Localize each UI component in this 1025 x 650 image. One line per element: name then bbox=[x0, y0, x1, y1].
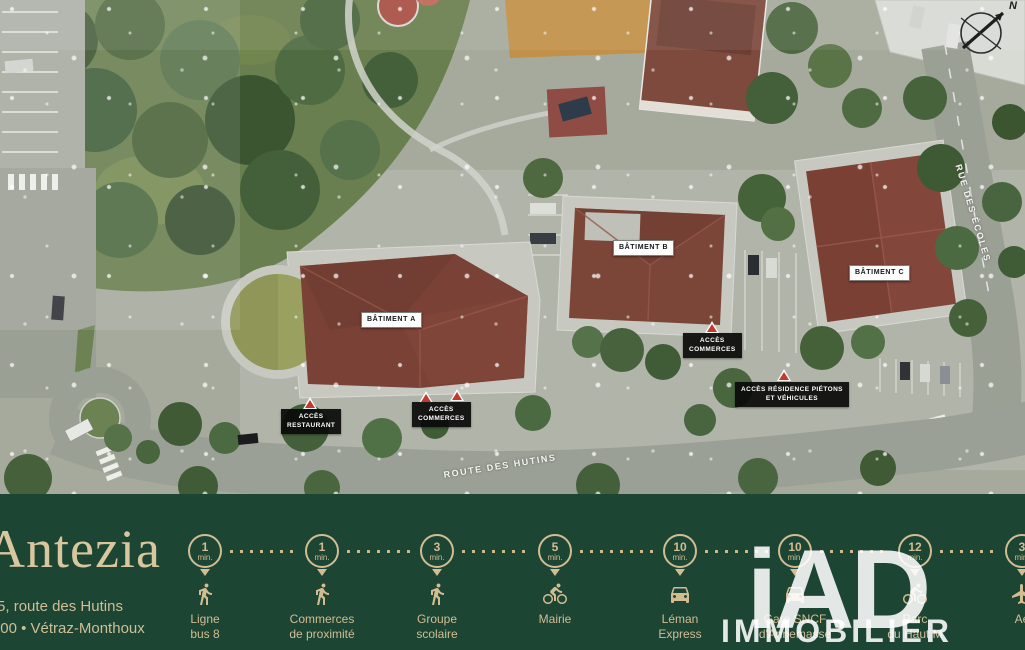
access-line: COMMERCES bbox=[418, 415, 465, 422]
time-pin: 10min. bbox=[663, 534, 697, 568]
access-residence-label: ACCÈS RÉSIDENCE PIÉTONS ET VÉHICULES bbox=[735, 382, 849, 407]
site-plan-scenery bbox=[0, 0, 1025, 494]
pin-tail bbox=[200, 569, 210, 576]
building-c-label: BÂTIMENT C bbox=[849, 265, 910, 281]
building-b-label: BÂTIMENT B bbox=[613, 240, 674, 256]
car-icon bbox=[620, 582, 740, 608]
time-pin: 3min. bbox=[1005, 534, 1025, 568]
poi-item-leman-express: 10min. LémanExpress bbox=[620, 534, 740, 642]
warning-triangle-icon bbox=[450, 389, 464, 401]
walk-icon bbox=[262, 582, 382, 608]
warning-triangle-icon bbox=[705, 321, 719, 333]
address-block: 5, route des Hutins 74100 • Vétraz-Month… bbox=[0, 596, 146, 640]
poi-label: Commercesde proximité bbox=[262, 612, 382, 642]
poi-label: LémanExpress bbox=[620, 612, 740, 642]
pin-tail bbox=[550, 569, 560, 576]
access-line: RESTAURANT bbox=[287, 422, 335, 429]
time-pin: 10min. bbox=[778, 534, 812, 568]
pin-tail bbox=[910, 569, 920, 576]
poi-label: Mairie bbox=[495, 612, 615, 627]
poi-label: Groupescolaire bbox=[377, 612, 497, 642]
access-restaurant-label: ACCÈS RESTAURANT bbox=[281, 409, 341, 434]
pin-tail bbox=[1017, 569, 1025, 576]
walk-icon bbox=[145, 582, 265, 608]
bike-icon bbox=[855, 582, 975, 608]
poi-label: Parcdu Haut M bbox=[855, 612, 975, 642]
poi-item-mairie: 5min. Mairie bbox=[495, 534, 615, 627]
address-line-1: 5, route des Hutins bbox=[0, 596, 146, 618]
poi-item-gare-sncf: 10min. Gare SNCFd'Annemasse bbox=[735, 534, 855, 642]
compass-north-label: N bbox=[1009, 0, 1017, 12]
plane-icon bbox=[962, 582, 1025, 608]
pin-tail bbox=[432, 569, 442, 576]
poi-label: Aé bbox=[962, 612, 1025, 627]
access-line: ET VÉHICULES bbox=[766, 395, 818, 402]
info-banner: Antezia 5, route des Hutins 74100 • Vétr… bbox=[0, 494, 1025, 650]
poi-label: Lignebus 8 bbox=[145, 612, 265, 642]
pin-tail bbox=[790, 569, 800, 576]
bike-icon bbox=[495, 582, 615, 608]
brand-logo: Antezia bbox=[0, 518, 161, 580]
time-pin: 5min. bbox=[538, 534, 572, 568]
poi-label: Gare SNCFd'Annemasse bbox=[735, 612, 855, 642]
access-line: COMMERCES bbox=[689, 346, 736, 353]
aerial-site-plan: BÂTIMENT A BÂTIMENT B BÂTIMENT C ACCÈS R… bbox=[0, 0, 1025, 494]
pin-tail bbox=[317, 569, 327, 576]
access-commerces-label-2: ACCÈS COMMERCES bbox=[683, 333, 742, 358]
car-icon bbox=[735, 582, 855, 608]
warning-triangle-icon bbox=[303, 397, 317, 409]
compass-icon: N bbox=[947, 2, 1019, 64]
access-commerces-label: ACCÈS COMMERCES bbox=[412, 402, 471, 427]
poi-item-aeroport: 3min. Aé bbox=[962, 534, 1025, 627]
poi-item-parc: 12min. Parcdu Haut M bbox=[855, 534, 975, 642]
site-plan-marketing-image: BÂTIMENT A BÂTIMENT B BÂTIMENT C ACCÈS R… bbox=[0, 0, 1025, 650]
building-b bbox=[557, 196, 737, 337]
time-pin: 1min. bbox=[188, 534, 222, 568]
access-line: ACCÈS bbox=[429, 406, 454, 413]
poi-item-ligne-bus: 1min. Lignebus 8 bbox=[145, 534, 265, 642]
building-a-label: BÂTIMENT A bbox=[361, 312, 422, 328]
time-pin: 3min. bbox=[420, 534, 454, 568]
poi-item-commerces: 1min. Commercesde proximité bbox=[262, 534, 382, 642]
poi-item-groupe-scolaire: 3min. Groupescolaire bbox=[377, 534, 497, 642]
access-line: ACCÈS bbox=[299, 413, 324, 420]
time-pin: 12min. bbox=[898, 534, 932, 568]
time-pin: 1min. bbox=[305, 534, 339, 568]
pin-tail bbox=[675, 569, 685, 576]
walk-icon bbox=[377, 582, 497, 608]
access-line: ACCÈS bbox=[700, 337, 725, 344]
access-line: ACCÈS RÉSIDENCE PIÉTONS bbox=[741, 386, 843, 393]
warning-triangle-icon bbox=[777, 369, 791, 381]
address-line-2: 74100 • Vétraz-Monthoux bbox=[0, 618, 146, 640]
